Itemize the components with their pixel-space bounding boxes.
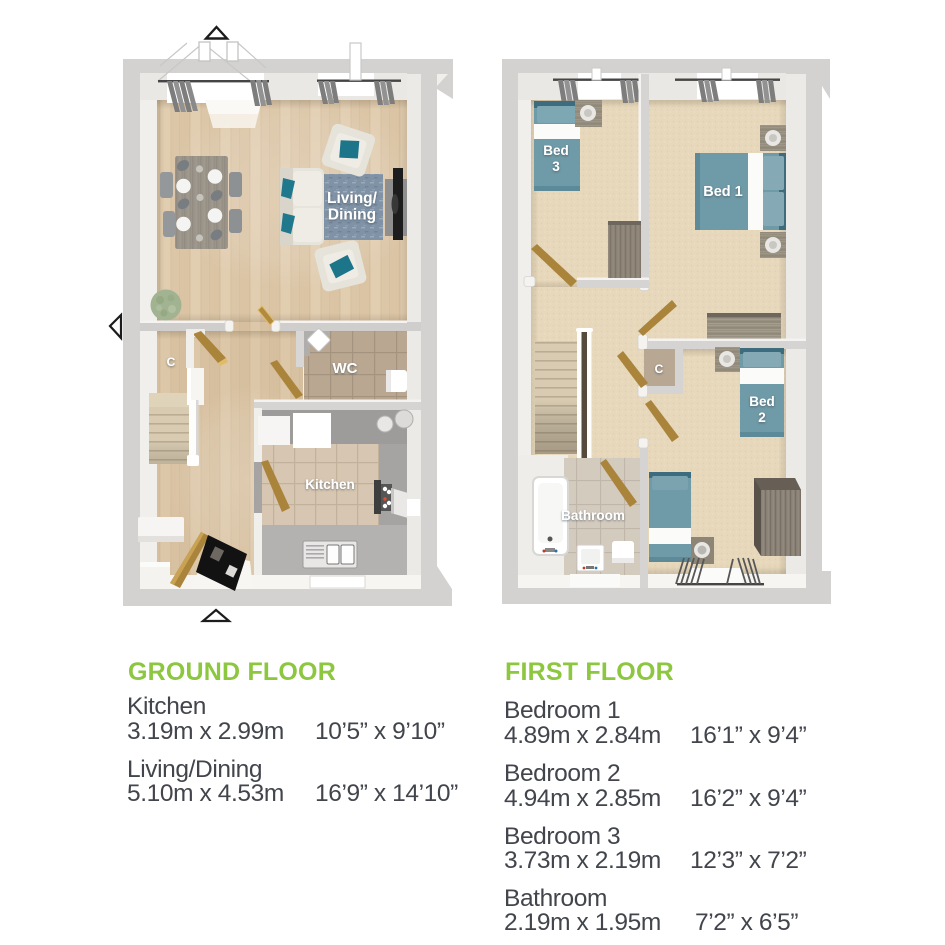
svg-text:Bedroom 1: Bedroom 1 — [504, 697, 620, 724]
svg-text:4.89m x 2.84m: 4.89m x 2.84m — [504, 722, 661, 749]
svg-text:Dining: Dining — [328, 207, 376, 224]
svg-text:16’9” x 14’10”: 16’9” x 14’10” — [315, 780, 458, 807]
svg-text:GROUND FLOOR: GROUND FLOOR — [128, 658, 336, 686]
svg-text:3: 3 — [552, 159, 560, 174]
svg-text:Bed: Bed — [749, 394, 775, 409]
svg-text:10’5” x 9’10”: 10’5” x 9’10” — [315, 718, 445, 745]
svg-text:FIRST FLOOR: FIRST FLOOR — [505, 658, 674, 686]
svg-text:3.19m x 2.99m: 3.19m x 2.99m — [127, 718, 284, 745]
svg-text:7’2” x 6’5”: 7’2” x 6’5” — [695, 909, 798, 936]
svg-text:WC: WC — [333, 360, 358, 377]
svg-text:C: C — [655, 362, 664, 376]
svg-text:16’1” x 9’4”: 16’1” x 9’4” — [690, 722, 807, 749]
svg-text:C: C — [167, 355, 176, 369]
svg-text:4.94m x 2.85m: 4.94m x 2.85m — [504, 785, 661, 812]
svg-text:2: 2 — [758, 410, 766, 425]
svg-text:Living/: Living/ — [327, 190, 378, 207]
svg-text:Bedroom 2: Bedroom 2 — [504, 760, 620, 787]
svg-text:Kitchen: Kitchen — [305, 477, 355, 492]
svg-text:Kitchen: Kitchen — [127, 693, 206, 720]
svg-text:2.19m x 1.95m: 2.19m x 1.95m — [504, 909, 661, 936]
svg-text:Living/Dining: Living/Dining — [127, 756, 262, 783]
svg-text:Bathroom: Bathroom — [561, 508, 625, 523]
svg-text:3.73m x 2.19m: 3.73m x 2.19m — [504, 847, 661, 874]
svg-text:Bedroom 3: Bedroom 3 — [504, 823, 620, 850]
svg-text:5.10m x 4.53m: 5.10m x 4.53m — [127, 780, 284, 807]
svg-text:Bed 1: Bed 1 — [703, 184, 743, 200]
svg-text:16’2” x 9’4”: 16’2” x 9’4” — [690, 785, 807, 812]
svg-text:12’3” x 7’2”: 12’3” x 7’2” — [690, 847, 807, 874]
svg-text:Bathroom: Bathroom — [504, 885, 607, 912]
svg-text:Bed: Bed — [543, 143, 569, 158]
